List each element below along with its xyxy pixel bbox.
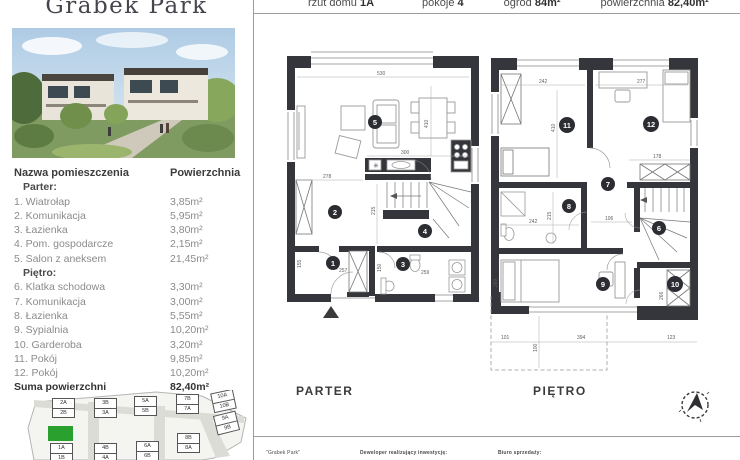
- plot-box: 3B3A: [94, 398, 117, 418]
- room-number: 6: [657, 224, 661, 233]
- plot-box: 7B7A: [176, 394, 199, 414]
- dim-label: 410: [424, 119, 430, 128]
- plot-box: 4B4A: [94, 443, 117, 460]
- site-map: 2A2B 3B3A 5A5B 7B7A 10A10B 1A1B 4B4A 6A6…: [6, 390, 248, 460]
- room-area: 21,45m²: [170, 252, 242, 266]
- dim-label: 260: [493, 278, 499, 287]
- table-row: 8. Łazienka 5,55m²: [14, 309, 242, 323]
- table-row: 9. Sypialnia 10,20m²: [14, 323, 242, 337]
- floor-plan-sheet: { "brand": { "title": "Grabek Park" }, "…: [0, 0, 740, 460]
- dim-label: 242: [539, 79, 548, 85]
- floor-plan-pietro: 242 277 410 178 215 242 106 260 266 101 …: [487, 52, 702, 382]
- plot-box: 2A2B: [52, 398, 75, 418]
- plot-box: 8B8A: [177, 433, 200, 453]
- room-area: 3,85m²: [170, 195, 242, 209]
- room-area: 3,80m²: [170, 223, 242, 237]
- room-area: 2,15m²: [170, 237, 242, 251]
- room-area: 9,85m²: [170, 352, 242, 366]
- room-name: 11. Pokój: [14, 352, 170, 366]
- room-name: 10. Garderoba: [14, 338, 170, 352]
- room-area-table: Nazwa pomieszczenia Powierzchnia Parter:…: [14, 166, 242, 395]
- room-name: 3. Łazienka: [14, 223, 170, 237]
- room-number: 11: [563, 121, 571, 130]
- dim-label: 106: [605, 216, 614, 222]
- dim-label: 259: [421, 270, 430, 276]
- table-header-row: Nazwa pomieszczenia Powierzchnia: [14, 166, 242, 180]
- room-name: 5. Salon z aneksem: [14, 252, 170, 266]
- col-header-area: Powierzchnia: [170, 166, 242, 180]
- table-row: 3. Łazienka 3,80m²: [14, 223, 242, 237]
- room-number: 12: [647, 120, 655, 129]
- room-area: 3,00m²: [170, 295, 242, 309]
- room-name: 6. Klatka schodowa: [14, 280, 170, 294]
- dim-label: 277: [637, 79, 646, 85]
- room-area: 5,95m²: [170, 209, 242, 223]
- dim-label: 257: [339, 268, 348, 274]
- dim-label: 215: [371, 206, 377, 215]
- dim-label: 278: [323, 174, 332, 180]
- vertical-divider: [253, 0, 254, 460]
- dim-label: 242: [529, 219, 538, 225]
- footer-sales-office-label: Biuro sprzedaży:: [498, 450, 542, 456]
- room-area: 5,55m²: [170, 309, 242, 323]
- room-name: 4. Pom. gospodarcze: [14, 237, 170, 251]
- table-row: 2. Komunikacja 5,95m²: [14, 209, 242, 223]
- room-number: 1: [331, 259, 335, 268]
- room-number: 10: [671, 280, 679, 289]
- room-name: 8. Łazienka: [14, 309, 170, 323]
- room-area: 10,20m²: [170, 323, 242, 337]
- footer-divider: [253, 436, 740, 437]
- spec-header: rzut domu 1A pokoje 4 ogród 84m² powierz…: [253, 0, 740, 9]
- dim-label: 394: [577, 335, 586, 341]
- table-row: 7. Komunikacja 3,00m²: [14, 295, 242, 309]
- spec-area: powierzchnia 82,40m²: [601, 0, 709, 9]
- header-divider: [253, 13, 740, 14]
- dim-label: 150: [377, 263, 383, 272]
- svg-text:✳: ✳: [373, 162, 379, 170]
- section-pietro: Piętro:: [14, 266, 242, 280]
- table-row: 12. Pokój 10,20m²: [14, 366, 242, 380]
- room-number: 2: [333, 208, 337, 217]
- dim-label: 155: [297, 259, 303, 268]
- room-area: 10,20m²: [170, 366, 242, 380]
- room-number: 3: [401, 260, 405, 269]
- table-row: 5. Salon z aneksem 21,45m²: [14, 252, 242, 266]
- table-row: 10. Garderoba 3,20m²: [14, 338, 242, 352]
- table-row: 1. Wiatrołap 3,85m²: [14, 195, 242, 209]
- section-parter: Parter:: [14, 180, 242, 194]
- dim-label: 123: [667, 335, 676, 341]
- plot-box: 6A6B: [136, 441, 159, 460]
- room-area: 3,30m²: [170, 280, 242, 294]
- dim-label: 100: [533, 343, 539, 352]
- table-row: 11. Pokój 9,85m²: [14, 352, 242, 366]
- brand-title: Grabek Park: [0, 0, 253, 19]
- room-name: 2. Komunikacja: [14, 209, 170, 223]
- dim-label: 101: [501, 335, 510, 341]
- pietro-label: PIĘTRO: [533, 384, 587, 398]
- room-area: 3,20m²: [170, 338, 242, 352]
- floor-plan-parter: ✳: [283, 50, 483, 327]
- footer-project-name: "Grabek Park": [266, 450, 300, 456]
- room-name: 1. Wiatrołap: [14, 195, 170, 209]
- room-number: 9: [601, 280, 605, 289]
- dim-label: 530: [377, 71, 386, 77]
- dim-label: 300: [401, 150, 410, 156]
- room-name: 9. Sypialnia: [14, 323, 170, 337]
- spec-plan: rzut domu 1A: [308, 0, 374, 9]
- dim-label: 266: [659, 291, 665, 300]
- room-number: 8: [567, 202, 571, 211]
- dim-label: 178: [653, 154, 662, 160]
- table-row: 4. Pom. gospodarcze 2,15m²: [14, 237, 242, 251]
- room-name: 7. Komunikacja: [14, 295, 170, 309]
- compass-north-icon: [676, 386, 714, 429]
- spec-rooms: pokoje 4: [422, 0, 464, 9]
- table-row: 6. Klatka schodowa 3,30m²: [14, 280, 242, 294]
- dim-label: 410: [551, 123, 557, 132]
- plot-box-highlighted: 1A1B: [50, 443, 73, 460]
- parter-label: PARTER: [296, 384, 353, 398]
- development-render-image: [12, 28, 235, 158]
- dim-label: 215: [547, 211, 553, 220]
- col-header-name: Nazwa pomieszczenia: [14, 166, 170, 180]
- footer-developer-label: Deweloper realizujący inwestycję:: [360, 450, 447, 456]
- room-name: 12. Pokój: [14, 366, 170, 380]
- highlighted-plot-area: [48, 426, 73, 441]
- plot-box: 5A5B: [134, 396, 157, 416]
- spec-garden: ogród 84m²: [504, 0, 561, 9]
- room-number: 7: [606, 180, 610, 189]
- room-number: 5: [373, 118, 377, 127]
